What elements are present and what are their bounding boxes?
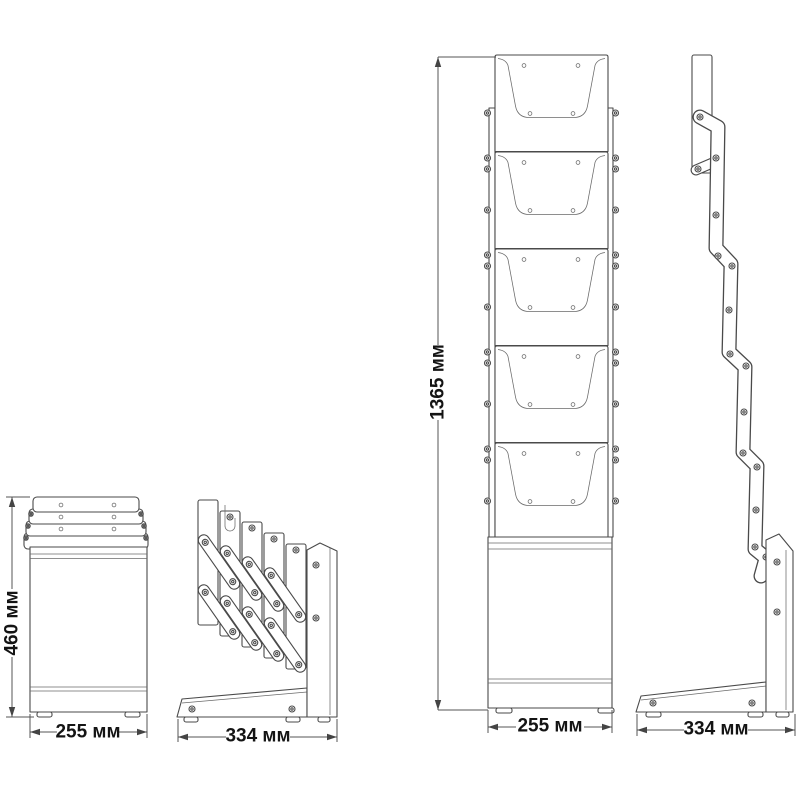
zigzag-spine bbox=[695, 114, 769, 576]
stand-foot-pad bbox=[318, 717, 330, 722]
stand-foot-pad bbox=[776, 712, 789, 717]
stand-foot-pad bbox=[646, 712, 661, 717]
open-base-box bbox=[488, 537, 614, 713]
brochure-pocket bbox=[495, 443, 608, 540]
dim-label-open-height: 1365 мм bbox=[428, 344, 449, 420]
stand-foot-pad bbox=[748, 712, 763, 717]
stand-foot-pad bbox=[37, 712, 52, 717]
base-foot-ramp bbox=[636, 682, 766, 712]
dim-label-open-side-depth: 334 мм bbox=[683, 719, 748, 740]
dim-open-front-width: 255 мм bbox=[488, 710, 612, 737]
dim-label-folded-front-width: 255 мм bbox=[55, 722, 120, 743]
base-back-support bbox=[307, 543, 337, 717]
brochure-pocket bbox=[495, 152, 608, 249]
brochure-pocket bbox=[495, 346, 608, 443]
dim-label-folded-side-depth: 334 мм bbox=[225, 726, 290, 747]
stand-foot-pad bbox=[286, 717, 300, 722]
technical-drawing: 460 мм 255 мм bbox=[0, 0, 800, 800]
folded-front-view: 460 мм 255 мм bbox=[2, 497, 149, 743]
folded-base-box bbox=[30, 547, 147, 717]
stand-foot-pad bbox=[496, 708, 512, 713]
dim-open-side-depth: 334 мм bbox=[637, 714, 795, 740]
open-front-view: 1365 мм 255 мм bbox=[428, 55, 619, 737]
dim-folded-front-width: 255 мм bbox=[30, 714, 147, 743]
stand-foot-pad bbox=[125, 712, 140, 717]
dim-label-folded-height: 460 мм bbox=[2, 590, 23, 655]
folded-slat-stack bbox=[24, 497, 148, 549]
dim-label-open-front-width: 255 мм bbox=[517, 716, 582, 737]
dim-folded-side-depth: 334 мм bbox=[178, 719, 337, 747]
open-side-view: 334 мм bbox=[636, 55, 795, 740]
folded-shelf-slat bbox=[33, 497, 139, 512]
open-base-side bbox=[636, 534, 793, 717]
brochure-pocket bbox=[495, 55, 608, 152]
base-foot-ramp bbox=[177, 688, 307, 717]
pocket-column bbox=[495, 55, 608, 540]
stand-foot-pad bbox=[184, 717, 198, 722]
left-rail bbox=[489, 108, 495, 537]
brochure-pocket bbox=[495, 249, 608, 346]
folded-side-view: 334 мм bbox=[177, 500, 337, 747]
